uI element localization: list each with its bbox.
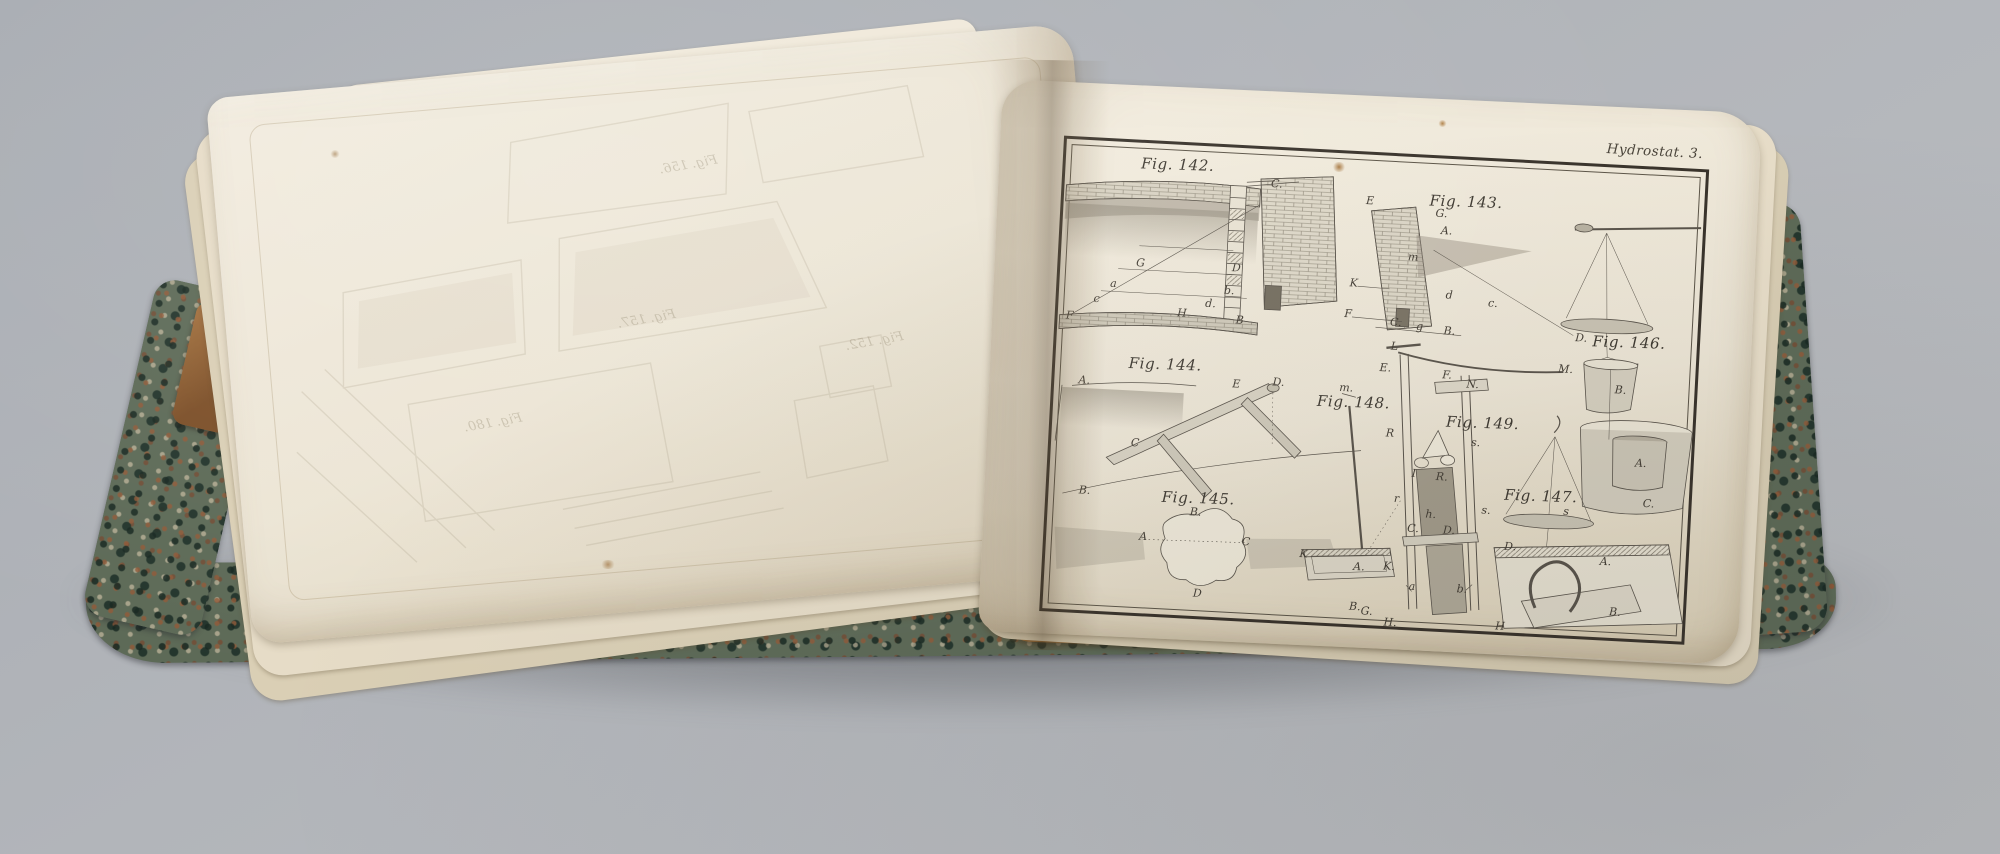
figure-label: B. bbox=[1078, 483, 1090, 497]
figure-label: C bbox=[1242, 535, 1251, 548]
foxing-stain bbox=[1332, 162, 1346, 172]
figure-label: R bbox=[1385, 426, 1394, 439]
figure-label: D. bbox=[1443, 524, 1456, 538]
figure-label: H bbox=[1495, 619, 1505, 632]
figure-label: H. bbox=[1383, 616, 1397, 630]
figure-label: Fig. 146. bbox=[1592, 332, 1666, 353]
figure-label: s. bbox=[1481, 503, 1491, 516]
figure-label: E bbox=[1366, 194, 1375, 207]
figure-label: d bbox=[1445, 288, 1453, 301]
figure-label: D. bbox=[1575, 331, 1588, 345]
foxing-stain bbox=[330, 150, 340, 158]
figure-label: d. bbox=[1205, 297, 1216, 311]
figure-label: D bbox=[1193, 587, 1202, 600]
figure-label: C. bbox=[1271, 177, 1283, 191]
figure-label: C. bbox=[1643, 497, 1655, 511]
figure-label: G bbox=[1136, 256, 1145, 269]
figure-label: G. bbox=[1360, 604, 1373, 618]
figure-label: B. bbox=[1443, 324, 1455, 338]
figure-label: B. bbox=[1614, 383, 1626, 397]
figure-label: N. bbox=[1466, 378, 1479, 392]
figure-label: Fig. 147. bbox=[1504, 486, 1578, 507]
figure-label: C bbox=[1131, 436, 1140, 449]
figure-label: D. bbox=[1504, 540, 1517, 554]
figure-label: K bbox=[1299, 547, 1308, 560]
figure-label: B bbox=[1235, 313, 1244, 326]
right-page: Hydrostat. 3. bbox=[978, 79, 1762, 665]
figure-label: c bbox=[1093, 292, 1100, 305]
plate-frame: Hydrostat. 3. bbox=[1039, 136, 1709, 645]
figure-label: D. bbox=[1272, 375, 1285, 389]
figure-label: F bbox=[1066, 308, 1074, 321]
figure-label: B. bbox=[1349, 600, 1361, 614]
figure-label: a bbox=[1408, 580, 1415, 593]
figure-label: Fig. 149. bbox=[1446, 413, 1520, 434]
figure-label: B. bbox=[1189, 505, 1201, 519]
figure-label: A. bbox=[1078, 373, 1090, 387]
book-photograph: Fig. 156.Fig. 157.Fig. 152.Fig. 180. Hyd… bbox=[0, 0, 2000, 854]
figure-label: L bbox=[1391, 340, 1399, 353]
figure-label: s bbox=[1563, 505, 1569, 518]
foxing-stain bbox=[1438, 120, 1447, 127]
figure-label: b. bbox=[1224, 284, 1235, 298]
figure-label: b. bbox=[1456, 582, 1467, 596]
figure-label: Fig. 148. bbox=[1317, 392, 1391, 413]
figure-label: E. bbox=[1379, 361, 1391, 375]
figure-label: s. bbox=[1471, 436, 1481, 449]
figure-label: E bbox=[1232, 377, 1241, 390]
figure-label: A. bbox=[1599, 555, 1611, 569]
figure-label: h. bbox=[1425, 508, 1436, 522]
figure-label: D bbox=[1232, 261, 1241, 274]
figure-label: A. bbox=[1635, 456, 1647, 470]
figure-label: g bbox=[1416, 320, 1424, 333]
figure-label: F bbox=[1344, 307, 1352, 320]
figure-label: M. bbox=[1558, 362, 1573, 376]
figure-label: B. bbox=[1609, 605, 1621, 619]
figure-label: F. bbox=[1442, 368, 1452, 381]
figure-label: A bbox=[1139, 530, 1148, 543]
plate-header: Hydrostat. 3. bbox=[1606, 141, 1703, 162]
figure-label: a bbox=[1110, 277, 1117, 290]
figure-label: C. bbox=[1390, 315, 1402, 329]
foxing-stain bbox=[600, 560, 616, 569]
figure-label: r bbox=[1394, 492, 1400, 505]
figure-label: Fig. 144. bbox=[1128, 354, 1202, 375]
figure-label: A. bbox=[1353, 560, 1365, 574]
figure-label: c. bbox=[1488, 297, 1498, 310]
figure-label: m bbox=[1408, 250, 1419, 264]
figure-label: R. bbox=[1436, 470, 1448, 484]
figure-label: G. bbox=[1435, 207, 1448, 221]
figure-label: H bbox=[1177, 306, 1187, 319]
figure-label: K bbox=[1349, 276, 1358, 289]
figure-label: A. bbox=[1441, 224, 1453, 238]
figure-label: K. bbox=[1383, 559, 1395, 573]
figure-label: I bbox=[1411, 467, 1416, 480]
figure-label: m. bbox=[1339, 381, 1354, 395]
figure-label: C. bbox=[1407, 522, 1419, 536]
figure-label: Fig. 142. bbox=[1141, 154, 1215, 175]
